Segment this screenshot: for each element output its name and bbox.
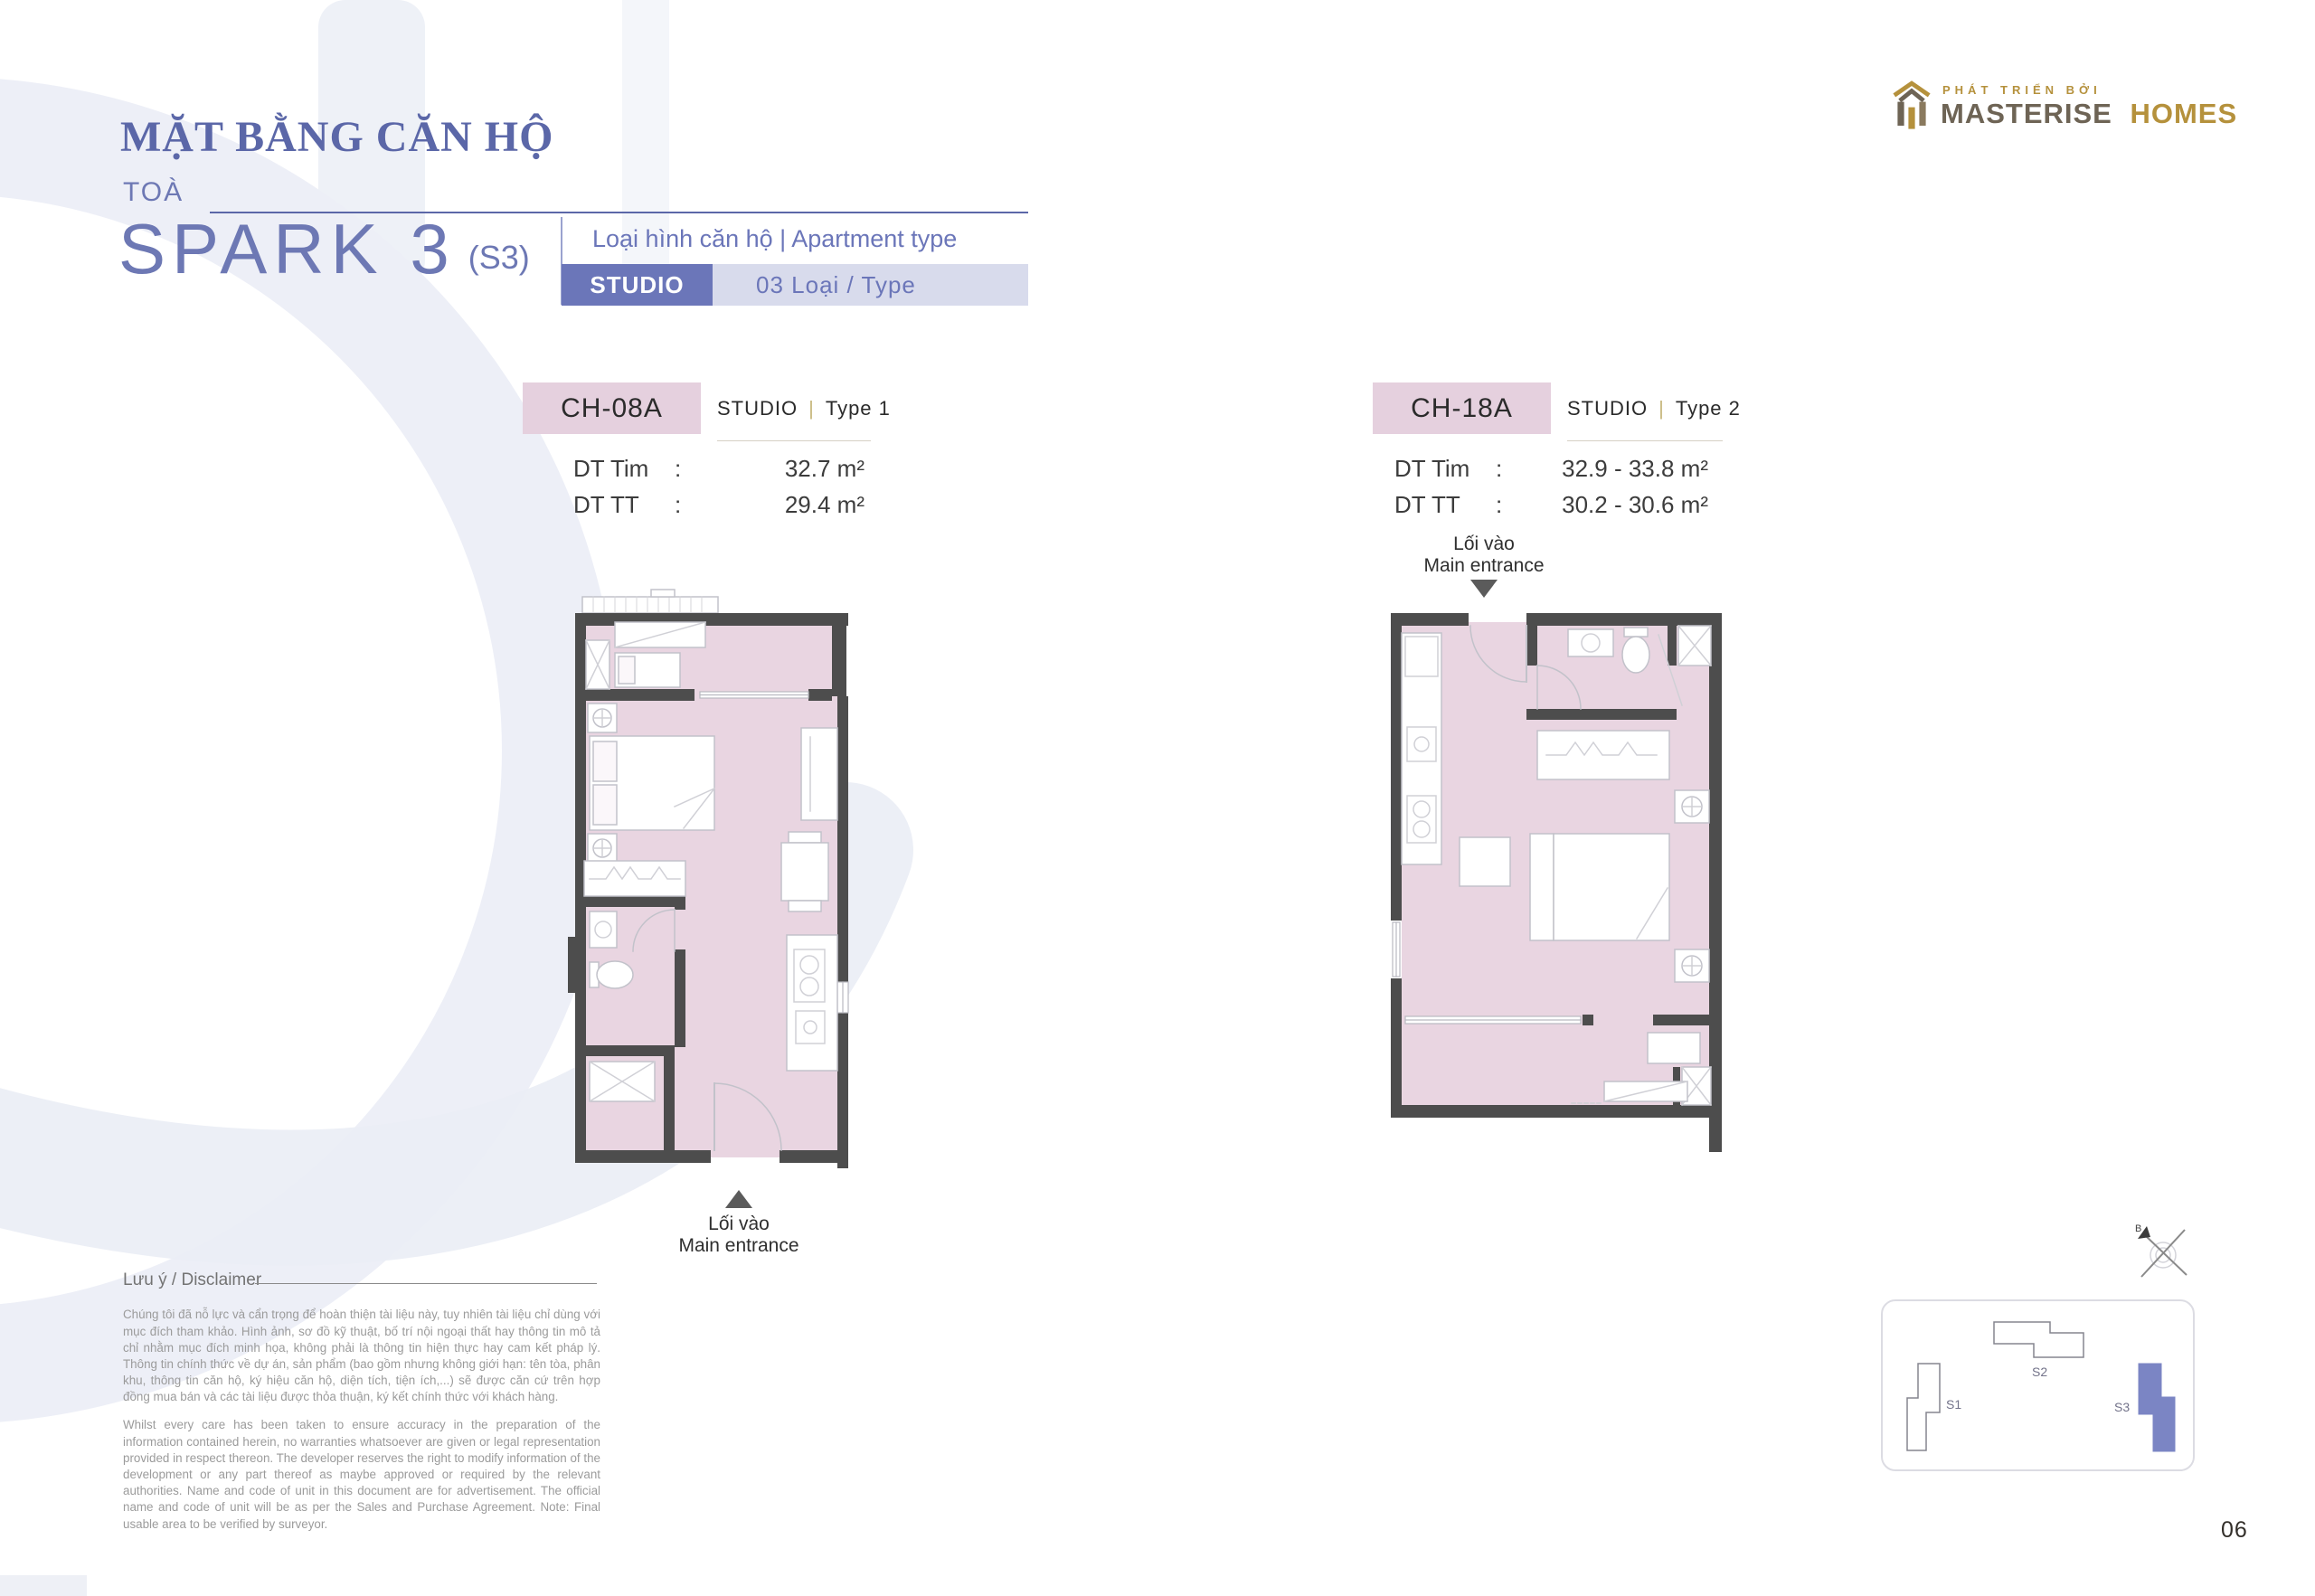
bathroom-sink (590, 911, 617, 948)
disclaimer-vietnamese: Chúng tôi đã nỗ lực và cẩn trọng để hoàn… (123, 1307, 600, 1405)
developer-tagline: PHÁT TRIỂN BỞI (1942, 83, 2102, 97)
area-label: DT Tim (573, 455, 675, 483)
page: MẶT BẰNG CĂN HỘ TOÀ SPARK 3 (S3) Loại hì… (0, 0, 2315, 1596)
separator: | (1658, 397, 1665, 420)
area-label: DT TT (1394, 491, 1496, 519)
unit-type: STUDIO (1567, 397, 1648, 420)
bed (1554, 834, 1669, 940)
ac-ledge (582, 590, 718, 613)
studio-type-badge: STUDIO (562, 264, 713, 306)
floor-plan-ch08a (568, 588, 855, 1185)
floor-plan-ch18a (1391, 600, 1733, 1161)
developer-name-primary: MASTERISE (1941, 98, 2112, 129)
unit-code-badge-ch18a: CH-18A (1373, 382, 1551, 434)
unit-code-badge-ch08a: CH-08A (523, 382, 701, 434)
building-code: (S3) (468, 239, 530, 284)
tv-cabinet (801, 728, 837, 820)
entrance-label-ch18a: Lối vào Main entrance (1412, 534, 1556, 577)
toilet (1622, 637, 1649, 673)
masterise-logo-icon (1890, 78, 1933, 130)
area-label: DT TT (573, 491, 675, 519)
balcony-bench (1648, 1033, 1700, 1063)
area-value: 29.4 m² (711, 491, 865, 519)
type-count-chip: 03 Loại / Type (713, 264, 1028, 306)
apartment-type-label: Loại hình căn hộ | Apartment type (592, 225, 957, 253)
building-s2-shape (1994, 1322, 2083, 1357)
entrance-line-vi: Lối vào (666, 1214, 811, 1235)
area-row: DT Tim : 32.7 m² (573, 455, 865, 483)
site-map: S1 S2 S3 (1883, 1301, 2193, 1469)
separator: | (808, 397, 815, 420)
unit-variant: Type 1 (826, 397, 891, 420)
entrance-line-en: Main entrance (666, 1235, 811, 1257)
page-number: 06 (2221, 1517, 2248, 1544)
area-row: DT TT : 30.2 - 30.6 m² (1394, 491, 1708, 519)
colon: : (1496, 491, 1532, 519)
entrance-line-vi: Lối vào (1412, 534, 1556, 555)
dining-table (781, 843, 828, 901)
page-title: MẶT BẰNG CĂN HỘ (120, 112, 553, 162)
unit-type-underline (717, 440, 871, 441)
toilet-tank (1624, 628, 1648, 637)
site-map-panel: S1 S2 S3 (1881, 1299, 2195, 1471)
compass-north-label: B (2135, 1223, 2141, 1234)
entrance-label-ch08a: Lối vào Main entrance (666, 1214, 811, 1257)
building-name: SPARK 3 (S3) (118, 213, 530, 284)
disclaimer-english: Whilst every care has been taken to ensu… (123, 1417, 600, 1533)
table (1460, 837, 1510, 886)
area-row: DT Tim : 32.9 - 33.8 m² (1394, 455, 1708, 483)
colon: : (675, 455, 711, 483)
chair (789, 901, 821, 911)
compass-icon: B (2134, 1223, 2202, 1286)
entrance-line-en: Main entrance (1412, 555, 1556, 577)
building-s1-shape (1907, 1364, 1940, 1450)
unit-variant: Type 2 (1676, 397, 1741, 420)
toilet (597, 961, 633, 988)
unit-type-line-ch18a: STUDIO | Type 2 (1567, 382, 1741, 434)
entrance-arrow-ch08a (725, 1190, 752, 1208)
building-s3-shape (2139, 1364, 2175, 1451)
unit-type-line-ch08a: STUDIO | Type 1 (717, 382, 891, 434)
bed-headboard (1530, 834, 1554, 940)
disclaimer-heading: Lưu ý / Disclaimer (123, 1270, 261, 1290)
area-value: 30.2 - 30.6 m² (1532, 491, 1708, 519)
colon: : (1496, 455, 1532, 483)
unit-type-underline (1567, 440, 1723, 441)
unit-type: STUDIO (717, 397, 798, 420)
building-s2-label: S2 (2032, 1365, 2047, 1379)
area-label: DT Tim (1394, 455, 1496, 483)
colon: : (675, 491, 711, 519)
area-value: 32.9 - 33.8 m² (1532, 455, 1708, 483)
chair (789, 832, 821, 843)
area-value: 32.7 m² (711, 455, 865, 483)
developer-name: MASTERISE HOMES (1941, 98, 2237, 130)
disclaimer-rule (255, 1283, 597, 1284)
building-label: TOÀ (123, 177, 184, 208)
entrance-arrow-ch18a (1470, 580, 1498, 598)
building-s3-label: S3 (2114, 1400, 2130, 1414)
building-s1-label: S1 (1946, 1397, 1961, 1412)
developer-name-secondary: HOMES (2130, 98, 2237, 129)
building-name-text: SPARK 3 (118, 213, 456, 284)
area-row: DT TT : 29.4 m² (573, 491, 865, 519)
